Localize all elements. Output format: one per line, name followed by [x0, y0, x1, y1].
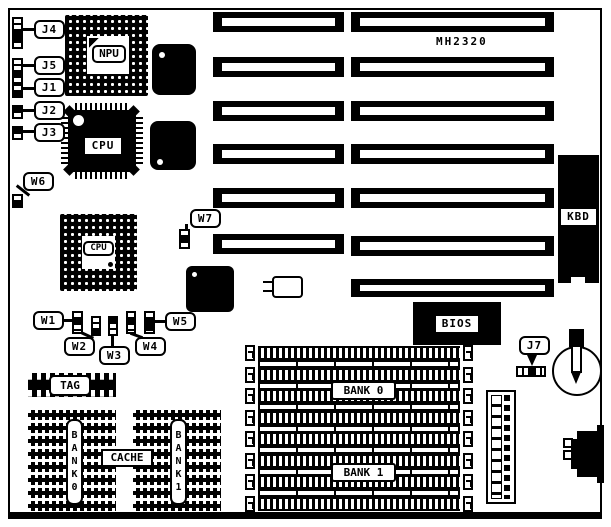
jumper-label-j1: J1 [34, 78, 65, 97]
jumper-label-w7: W7 [190, 209, 221, 228]
jumper-cap [128, 319, 134, 325]
crystal-oscillator [272, 276, 303, 298]
simm-latch [245, 388, 255, 404]
jumper-cap [14, 31, 21, 43]
jumper-cap [14, 91, 21, 96]
jumper-label-j4: J4 [34, 20, 65, 39]
kbd-notch [571, 277, 585, 283]
expansion-slot [213, 234, 344, 254]
npu-label: NPU [92, 45, 126, 63]
cache-label: CACHE [101, 449, 153, 467]
simm-latch [245, 367, 255, 383]
simm-latch [463, 496, 473, 512]
expansion-slot [351, 101, 554, 121]
jumper-j3 [12, 126, 23, 140]
jumper-label-w4: W4 [135, 337, 166, 356]
jumper-cap [14, 72, 21, 78]
jumper-cap [14, 201, 21, 206]
expansion-slot [213, 144, 344, 164]
jumper-label-j7: J7 [519, 336, 550, 355]
pin1-dot-icon [157, 159, 163, 165]
dram-bank0-label: BANK 0 [331, 381, 396, 400]
simm-socket-row [258, 403, 460, 411]
pin1-ring-icon [73, 115, 84, 126]
simm-module [258, 346, 460, 360]
cpu-leads-right [135, 117, 143, 165]
din-pin [563, 450, 573, 460]
expansion-slot [351, 279, 554, 297]
expansion-slot [351, 57, 554, 77]
jumper-w6 [12, 194, 23, 208]
simm-latch [463, 453, 473, 469]
simm-latch [463, 474, 473, 490]
simm-socket-row [258, 489, 460, 497]
expansion-slot [213, 188, 344, 208]
cpu-leads-bottom [75, 171, 129, 179]
jumper-cap [74, 319, 81, 325]
expansion-slot [351, 12, 554, 32]
expansion-slot [213, 12, 344, 32]
jumper-label-w3: W3 [99, 346, 130, 365]
jumper-j4 [12, 17, 23, 49]
battery-key [571, 347, 582, 373]
power-pin-column [491, 395, 502, 499]
tag-label: TAG [49, 375, 91, 396]
jumper-cap [181, 236, 188, 242]
simm-module [258, 368, 460, 382]
jumper-label-w5: W5 [165, 312, 196, 331]
pin1-dot-icon [192, 272, 197, 277]
kbd-label: KBD [561, 209, 596, 225]
jumper-cap [14, 107, 21, 112]
simm-socket-row [258, 360, 460, 368]
jumper-cap [93, 328, 99, 334]
pin1-dot-icon [159, 52, 165, 58]
pin1-bdot-icon [108, 262, 113, 267]
simm-latch [245, 345, 255, 361]
simm-socket-row [258, 446, 460, 454]
simm-latch [463, 345, 473, 361]
simm-latch [245, 410, 255, 426]
jumper-w7 [179, 229, 190, 249]
expansion-slot [351, 236, 554, 256]
battery-clip [569, 329, 584, 347]
jumper-cap [530, 368, 536, 375]
crystal-lead [263, 290, 272, 292]
din-connector-step [597, 425, 604, 432]
dram-bank1-label: BANK 1 [331, 463, 396, 482]
jumper-label-w1: W1 [33, 311, 64, 330]
expansion-slot [213, 101, 344, 121]
simm-module [258, 497, 460, 511]
din-connector [577, 431, 604, 477]
crystal-lead [263, 281, 272, 283]
simm-area [245, 345, 473, 515]
jumper-label-j2: J2 [34, 101, 65, 120]
callout-arrow [527, 355, 537, 366]
jumper-j5 [12, 58, 23, 84]
jumper-w4 [126, 311, 136, 334]
simm-latch [245, 474, 255, 490]
cpu-socket-label: CPU [83, 241, 114, 256]
simm-latch [463, 388, 473, 404]
callout-tail [111, 336, 114, 346]
power-connector [486, 390, 516, 504]
board-model: MH2320 [436, 35, 488, 48]
simm-latch [463, 431, 473, 447]
cache-bank0-label: BANK0 [66, 419, 83, 505]
jumper-w3 [108, 316, 118, 336]
jumper-j7 [516, 366, 546, 377]
jumper-cap [110, 318, 116, 324]
expansion-slot [351, 144, 554, 164]
jumper-cap [14, 128, 21, 133]
simm-module [258, 411, 460, 425]
cpu-qfp-label: CPU [85, 138, 121, 154]
simm-module [258, 432, 460, 446]
jumper-j2 [12, 105, 23, 119]
cache-bank1-label: BANK1 [170, 419, 187, 505]
callout-tail [185, 224, 188, 231]
jumper-w2 [91, 316, 101, 336]
battery-key-tip [571, 372, 581, 384]
simm-latch [245, 496, 255, 512]
jumper-cap [146, 319, 153, 331]
din-pin [563, 438, 573, 448]
jumper-label-w2: W2 [64, 337, 95, 356]
simm-latch [463, 410, 473, 426]
jumper-label-j3: J3 [34, 123, 65, 142]
jumper-label-w6: W6 [23, 172, 54, 191]
simm-latch [245, 431, 255, 447]
expansion-slot [213, 57, 344, 77]
din-connector-step [597, 476, 604, 483]
bios-label: BIOS [436, 316, 478, 332]
simm-latch [463, 367, 473, 383]
simm-latch [245, 453, 255, 469]
expansion-slot [351, 188, 554, 208]
jumper-label-j5: J5 [34, 56, 65, 75]
qfp-chip [152, 44, 196, 95]
motherboard-diagram: J4 J5 J1 J2 J3 W6 NPU CPU CPU W7 [0, 0, 611, 527]
power-pin-column [504, 395, 510, 499]
